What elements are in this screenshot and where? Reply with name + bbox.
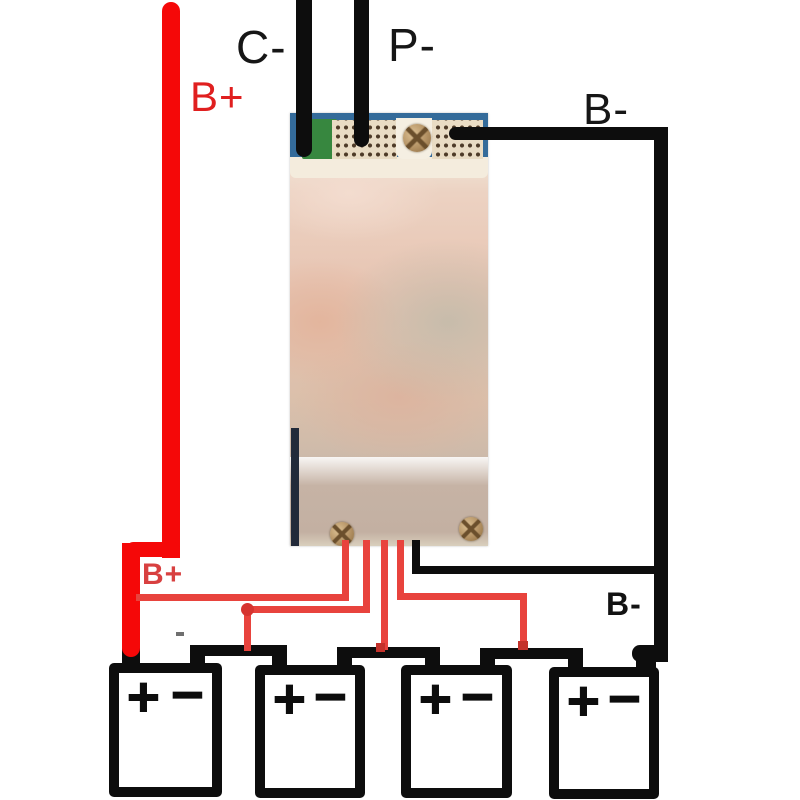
series-link-1-2 [190, 645, 287, 665]
board-white-strip [290, 157, 488, 178]
label-b-plus-top: B+ [190, 76, 245, 118]
board-body [290, 157, 488, 457]
b-minus-wire-vertical [654, 127, 668, 655]
label-p-minus: P- [388, 22, 436, 68]
battery-cell-2: + − [255, 665, 365, 798]
sense-wire-2-vertical [363, 540, 370, 613]
b-minus-wire-end [632, 645, 668, 662]
series-link-3-4 [480, 648, 583, 668]
board-left-edge [291, 428, 299, 546]
bms-wiring-diagram: + − + − + − + − B+ C [0, 0, 800, 800]
sense-wire-3-vertical [381, 540, 388, 650]
battery-minus-symbol: − [169, 673, 206, 717]
board-lower-body [290, 453, 488, 546]
battery-minus-symbol: − [606, 677, 643, 721]
screw-icon [403, 124, 431, 152]
battery-cell-1: + − [109, 663, 222, 797]
label-b-plus-bottom: B+ [142, 560, 183, 590]
label-b-minus-top: B- [583, 88, 629, 132]
battery-plus-symbol: + [271, 677, 308, 721]
battery-minus-symbol: − [459, 675, 496, 719]
p-minus-wire [354, 0, 369, 147]
stray-mark [176, 632, 184, 636]
battery-cell-3: + − [401, 665, 512, 798]
battery-plus-symbol: + [125, 675, 162, 719]
b-minus-wire-horizontal [449, 127, 668, 140]
battery-minus-symbol: − [312, 675, 349, 719]
c-minus-wire [296, 0, 312, 157]
screw-icon [459, 517, 483, 541]
label-b-minus-bottom: B- [606, 588, 642, 620]
wire-landing-mark [518, 641, 528, 650]
b-minus-sense-horizontal [412, 566, 662, 574]
battery-plus-symbol: + [417, 677, 454, 721]
series-link-2-3 [337, 647, 440, 667]
sense-wire-4-vertical [397, 540, 404, 600]
wire-junction-dot [241, 603, 254, 616]
sense-wire-2-horizontal [244, 606, 370, 613]
wire-landing-mark [376, 643, 385, 652]
battery-cell-4: + − [549, 667, 659, 799]
sense-wire-1-vertical [342, 540, 349, 601]
label-c-minus: C- [236, 24, 287, 70]
b-plus-wire-vertical [162, 2, 180, 558]
bms-board [290, 113, 488, 546]
battery-plus-symbol: + [565, 679, 602, 723]
sense-wire-1-horizontal [136, 594, 349, 601]
sense-wire-4-horizontal [397, 593, 527, 600]
